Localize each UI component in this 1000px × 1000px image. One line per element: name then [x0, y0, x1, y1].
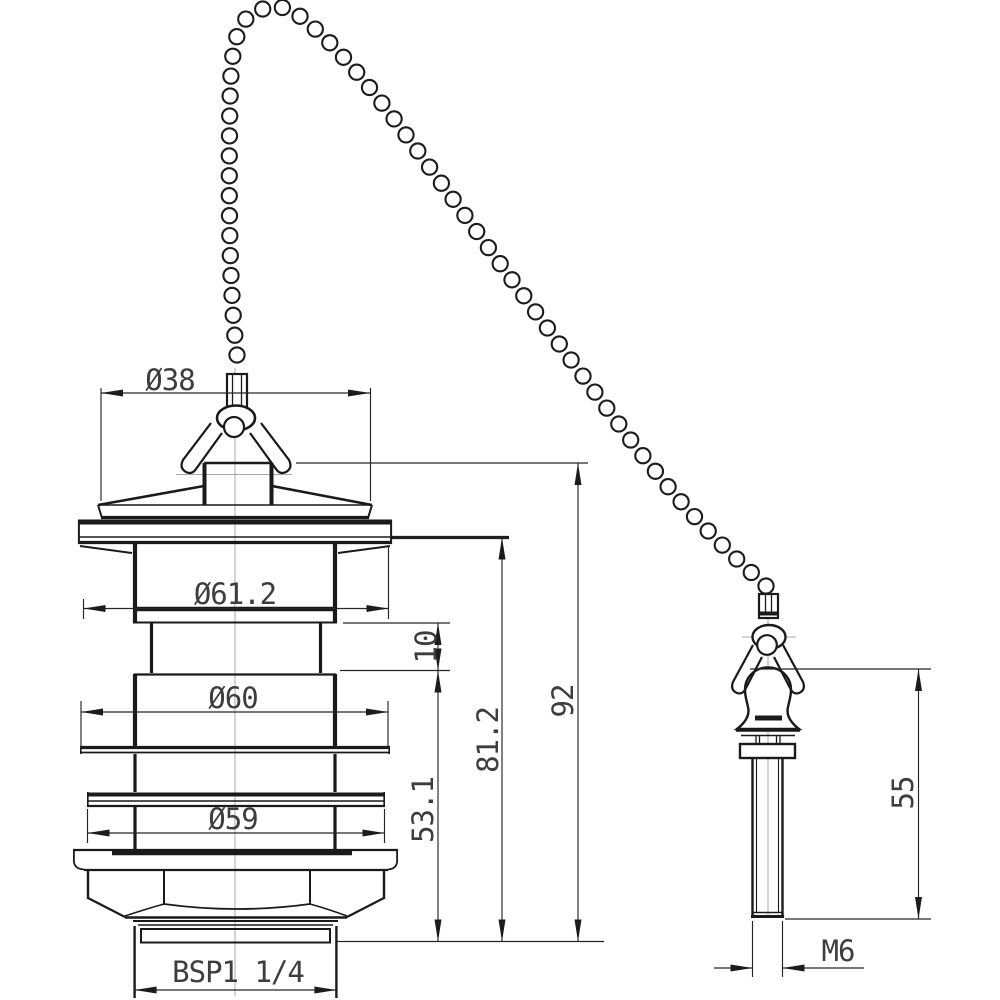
- chain-bead: [715, 538, 730, 553]
- chain-bead: [446, 192, 461, 207]
- chain-bead: [238, 12, 253, 27]
- chain-bead: [552, 336, 567, 351]
- hexnut-chamfer: [347, 898, 384, 917]
- technical-drawing: Ø38 Ø61.2 Ø60 Ø59: [0, 0, 1000, 1000]
- chain-bead: [687, 509, 702, 524]
- hexnut-chamfer: [88, 898, 125, 917]
- arrowhead: [363, 830, 385, 837]
- chain-bead: [758, 578, 773, 593]
- arrowhead: [435, 920, 442, 942]
- dim-label-body-height: 81.2: [471, 707, 505, 773]
- dim-label-overall-height: 92: [546, 685, 580, 718]
- arrowhead: [88, 830, 110, 837]
- chain-bead: [387, 111, 402, 126]
- arrowhead: [499, 538, 506, 560]
- arrowhead: [84, 605, 106, 612]
- arrowhead: [575, 920, 582, 942]
- arrowhead: [915, 897, 922, 919]
- chain-bead: [222, 108, 237, 123]
- hexnut-side-arc: [125, 904, 164, 916]
- bottom-flange-corner: [74, 862, 84, 870]
- chain-bead: [223, 88, 238, 103]
- dimensions: Ø38 Ø61.2 Ø60 Ø59: [81, 363, 931, 994]
- dim-stay-thread: M6: [714, 921, 864, 977]
- chain-bead: [575, 369, 590, 384]
- plug-cone-right: [272, 486, 372, 505]
- chain-bead: [222, 228, 237, 243]
- arrowhead: [366, 709, 388, 716]
- arrowhead: [348, 390, 370, 397]
- stay-nut: [740, 744, 795, 758]
- chain-bead: [611, 416, 626, 431]
- chain-bead: [587, 385, 602, 400]
- dim-label-stay-length: 55: [886, 777, 920, 810]
- flange-under-bevel: [80, 546, 132, 553]
- chain-bead: [226, 308, 241, 323]
- chain-bead: [223, 69, 238, 84]
- chain-bead: [661, 479, 676, 494]
- hexnut-center-arc: [164, 904, 310, 909]
- chain-bead: [223, 248, 238, 263]
- chain-bead: [528, 304, 543, 319]
- flange-under-bevel: [338, 546, 390, 553]
- chain-bead: [222, 148, 237, 163]
- plug-cone-left: [98, 486, 204, 505]
- chain-bead: [599, 401, 614, 416]
- chain-bead: [648, 464, 663, 479]
- chain-bead: [222, 188, 237, 203]
- dim-label-stay-thread: M6: [822, 934, 855, 968]
- chain-bead: [227, 328, 242, 343]
- chain-bead: [222, 208, 237, 223]
- dim-tail-thread: BSP1 1/4: [135, 955, 337, 994]
- chain-bead: [336, 50, 351, 65]
- chain-bead: [504, 272, 519, 287]
- chain-bead: [635, 448, 650, 463]
- chain-bead: [674, 494, 689, 509]
- arrowhead: [314, 987, 336, 994]
- dim-lower-washer-diameter: Ø59: [88, 802, 385, 843]
- chain-bead: [222, 128, 237, 143]
- arrowhead: [435, 671, 442, 693]
- dim-label-lower-washer-diameter: Ø59: [208, 802, 257, 836]
- dim-flange-diameter: Ø61.2: [84, 546, 389, 619]
- chain-bead: [516, 288, 531, 303]
- dim-label-tail-thread: BSP1 1/4: [172, 955, 304, 989]
- chain-bead: [701, 523, 716, 538]
- chain-bead: [469, 224, 484, 239]
- arrowhead: [81, 709, 103, 716]
- dim-label-upper-washer-diameter: Ø60: [208, 681, 257, 715]
- arrowhead: [135, 987, 157, 994]
- plug-bail-left-wire: [182, 423, 222, 473]
- chain-bead: [225, 49, 240, 64]
- dim-label-lower-section-height: 53.1: [406, 777, 440, 843]
- chain-bead: [229, 347, 244, 362]
- dim-label-flange-diameter: Ø61.2: [194, 577, 276, 611]
- chain-bead: [349, 65, 364, 80]
- chain-bead: [292, 9, 307, 24]
- chain-bead: [308, 22, 323, 37]
- dim-label-plug-diameter: Ø38: [145, 363, 194, 397]
- arrowhead: [731, 965, 753, 972]
- chain-bead: [623, 432, 638, 447]
- chain-bead: [255, 1, 270, 16]
- chain-bead: [374, 96, 389, 111]
- drawing-page: Ø38 Ø61.2 Ø60 Ø59: [0, 0, 1000, 1000]
- chain-bead: [434, 176, 449, 191]
- dim-label-neck-height: 10: [409, 631, 443, 664]
- chain-bead: [223, 268, 238, 283]
- chain-bead: [222, 168, 237, 183]
- dim-body-height: 81.2: [392, 538, 509, 942]
- arrowhead: [575, 463, 582, 485]
- chain-bead: [322, 35, 337, 50]
- arrowhead: [499, 920, 506, 942]
- hexnut-side-arc: [310, 904, 347, 916]
- chain-bead: [457, 208, 472, 223]
- chain-bead: [493, 256, 508, 271]
- chain-bead: [362, 80, 377, 95]
- chain-bead: [410, 143, 425, 158]
- chain-bead: [481, 240, 496, 255]
- stay-head-slot: [755, 716, 782, 721]
- dim-lower-section-height: 53.1: [406, 671, 442, 942]
- chain-bead: [224, 288, 239, 303]
- arrowhead: [783, 965, 805, 972]
- arrowhead: [367, 605, 389, 612]
- chain-bead: [744, 565, 759, 580]
- arrowhead: [101, 390, 123, 397]
- arrowhead: [915, 669, 922, 691]
- chain-bead: [540, 320, 555, 335]
- plug-chain-link: [224, 417, 244, 437]
- chain-bead: [422, 160, 437, 175]
- chain-bead: [398, 127, 413, 142]
- bottom-flange-corner: [388, 862, 397, 870]
- chain-bead: [729, 551, 744, 566]
- stay-chain-link: [757, 635, 777, 655]
- chain-bead: [564, 352, 579, 367]
- chain-bead: [229, 29, 244, 44]
- chain-bead: [275, 0, 290, 15]
